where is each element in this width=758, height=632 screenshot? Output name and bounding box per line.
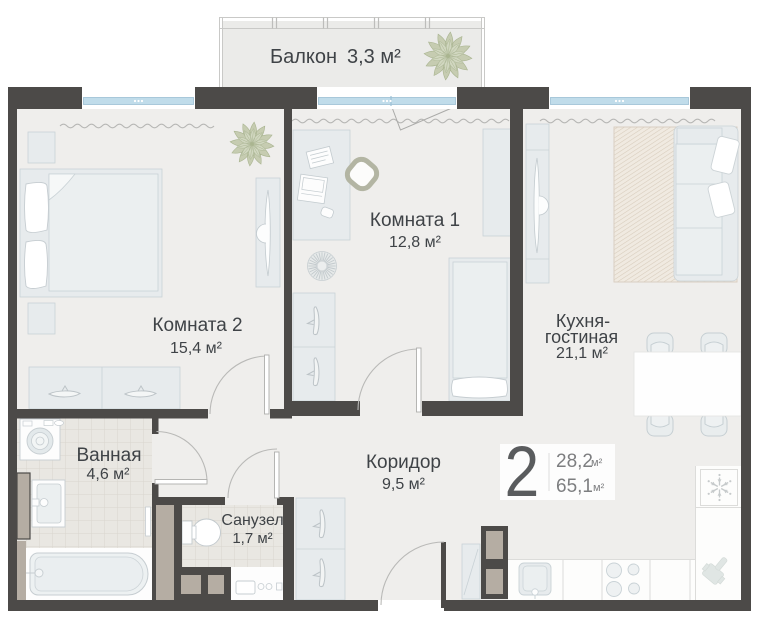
svg-text:1,7 м²: 1,7 м² bbox=[232, 530, 272, 547]
svg-text:Комната 1: Комната 1 bbox=[370, 210, 460, 231]
svg-text:2: 2 bbox=[504, 432, 539, 512]
svg-text:4,6 м²: 4,6 м² bbox=[86, 466, 130, 483]
svg-text:Комната 2: Комната 2 bbox=[152, 315, 242, 336]
svg-text:гостиная: гостиная bbox=[545, 327, 618, 347]
svg-text:Коридор: Коридор bbox=[366, 452, 441, 473]
svg-text:65,1: 65,1 bbox=[556, 476, 593, 497]
svg-text:28,2: 28,2 bbox=[556, 451, 593, 472]
svg-text:15,4 м²: 15,4 м² bbox=[170, 340, 223, 357]
svg-text:м²: м² bbox=[591, 457, 603, 469]
svg-text:21,1 м²: 21,1 м² bbox=[556, 345, 609, 362]
svg-text:3,3 м²: 3,3 м² bbox=[347, 46, 401, 68]
svg-text:м²: м² bbox=[593, 482, 605, 494]
svg-text:9,5 м²: 9,5 м² bbox=[382, 476, 426, 493]
svg-text:Балкон: Балкон bbox=[270, 46, 337, 68]
svg-text:12,8 м²: 12,8 м² bbox=[389, 234, 442, 251]
svg-text:Санузел: Санузел bbox=[221, 512, 283, 529]
svg-text:Ванная: Ванная bbox=[76, 445, 141, 466]
